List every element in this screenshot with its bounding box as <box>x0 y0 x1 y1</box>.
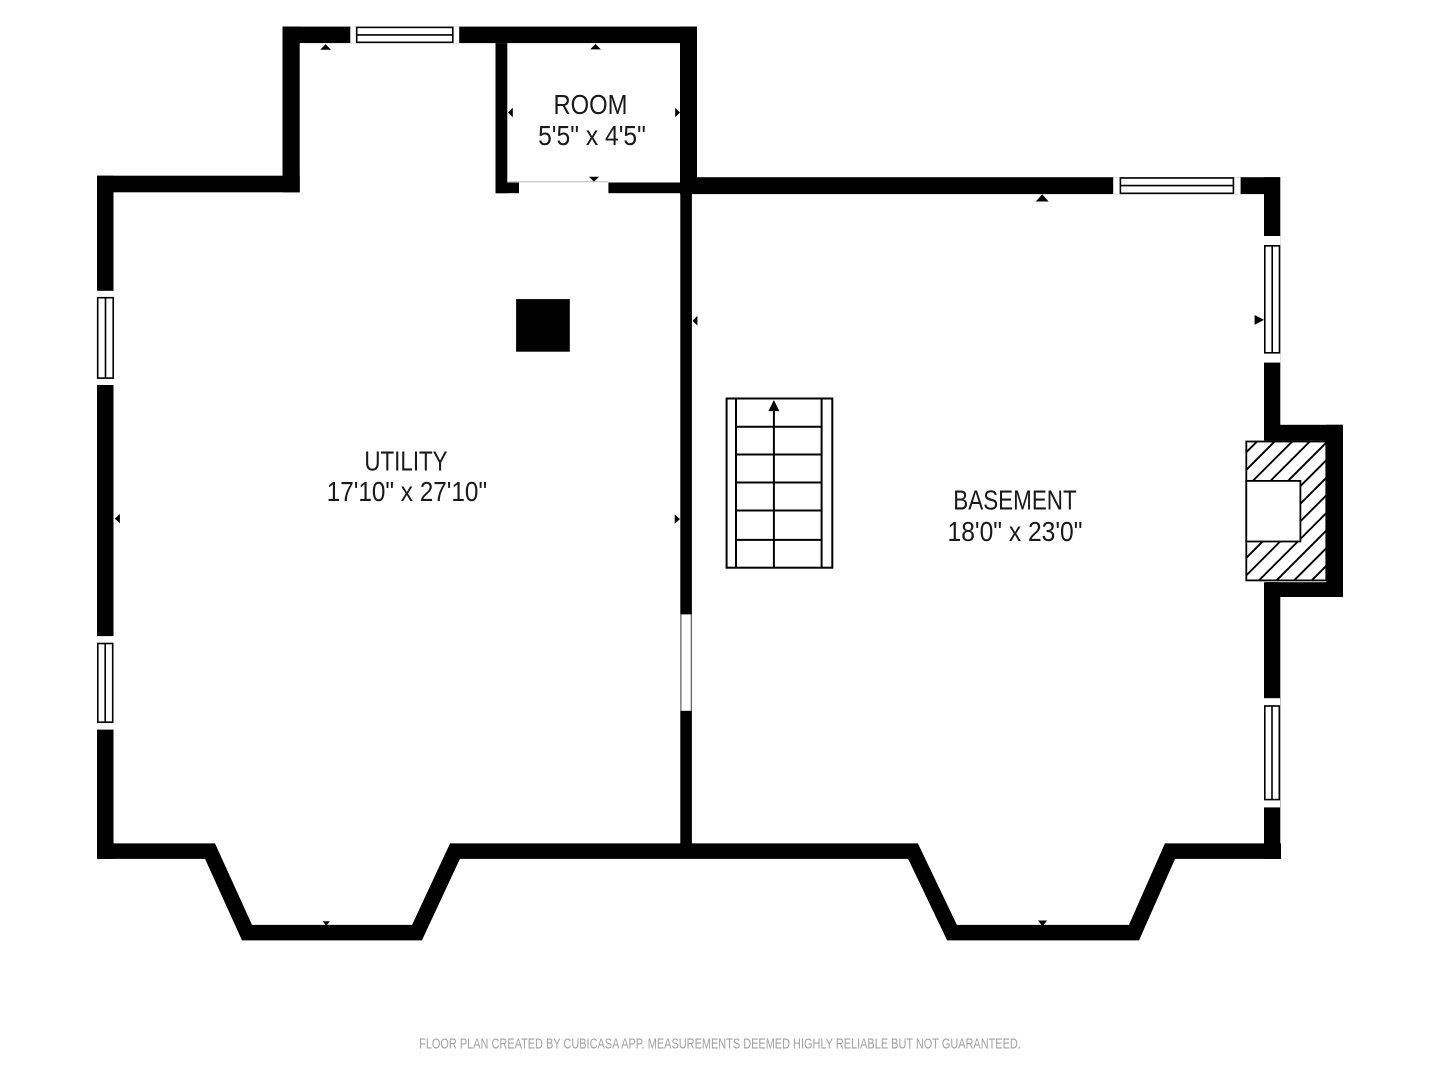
svg-text:17'10" x 27'10": 17'10" x 27'10" <box>327 476 487 507</box>
svg-text:UTILITY: UTILITY <box>364 446 447 477</box>
svg-text:ROOM: ROOM <box>554 89 628 120</box>
svg-text:5'5" x 4'5": 5'5" x 4'5" <box>538 120 646 151</box>
svg-text:18'0" x 23'0": 18'0" x 23'0" <box>948 516 1083 547</box>
svg-text:BASEMENT: BASEMENT <box>953 484 1077 515</box>
svg-text:FLOOR PLAN CREATED BY CUBICASA: FLOOR PLAN CREATED BY CUBICASA APP. MEAS… <box>419 1035 1021 1052</box>
